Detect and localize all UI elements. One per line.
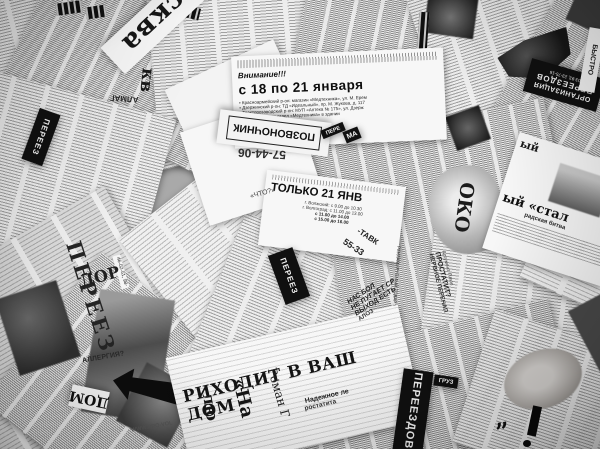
pereez-center-text: ПЕРЕЕЗ (278, 257, 299, 296)
pozvonochnik-text: ПОЗВОНОЧНИК (232, 121, 315, 143)
exclamation-dot (523, 440, 531, 447)
ma-chip-text: МА (346, 130, 359, 141)
portrait-photo (423, 0, 478, 39)
kv-letters: кв (135, 67, 157, 93)
gruz-text: ГРУЗ (438, 377, 454, 385)
pereezdov-text: ПЕРЕЕЗДОВ (402, 372, 425, 449)
bystro-text: БЫСТРО (586, 44, 598, 76)
lu-text: лю (198, 392, 221, 422)
phone-center: 57-44-06 (238, 145, 287, 161)
newspaper-collage-photo: осква кв АЛМАГ ПЕРЕЕЗ ПЕРЕЕЗ 46-02-51, 9… (0, 0, 600, 449)
almag-ad: АЛМАГ (110, 93, 139, 104)
